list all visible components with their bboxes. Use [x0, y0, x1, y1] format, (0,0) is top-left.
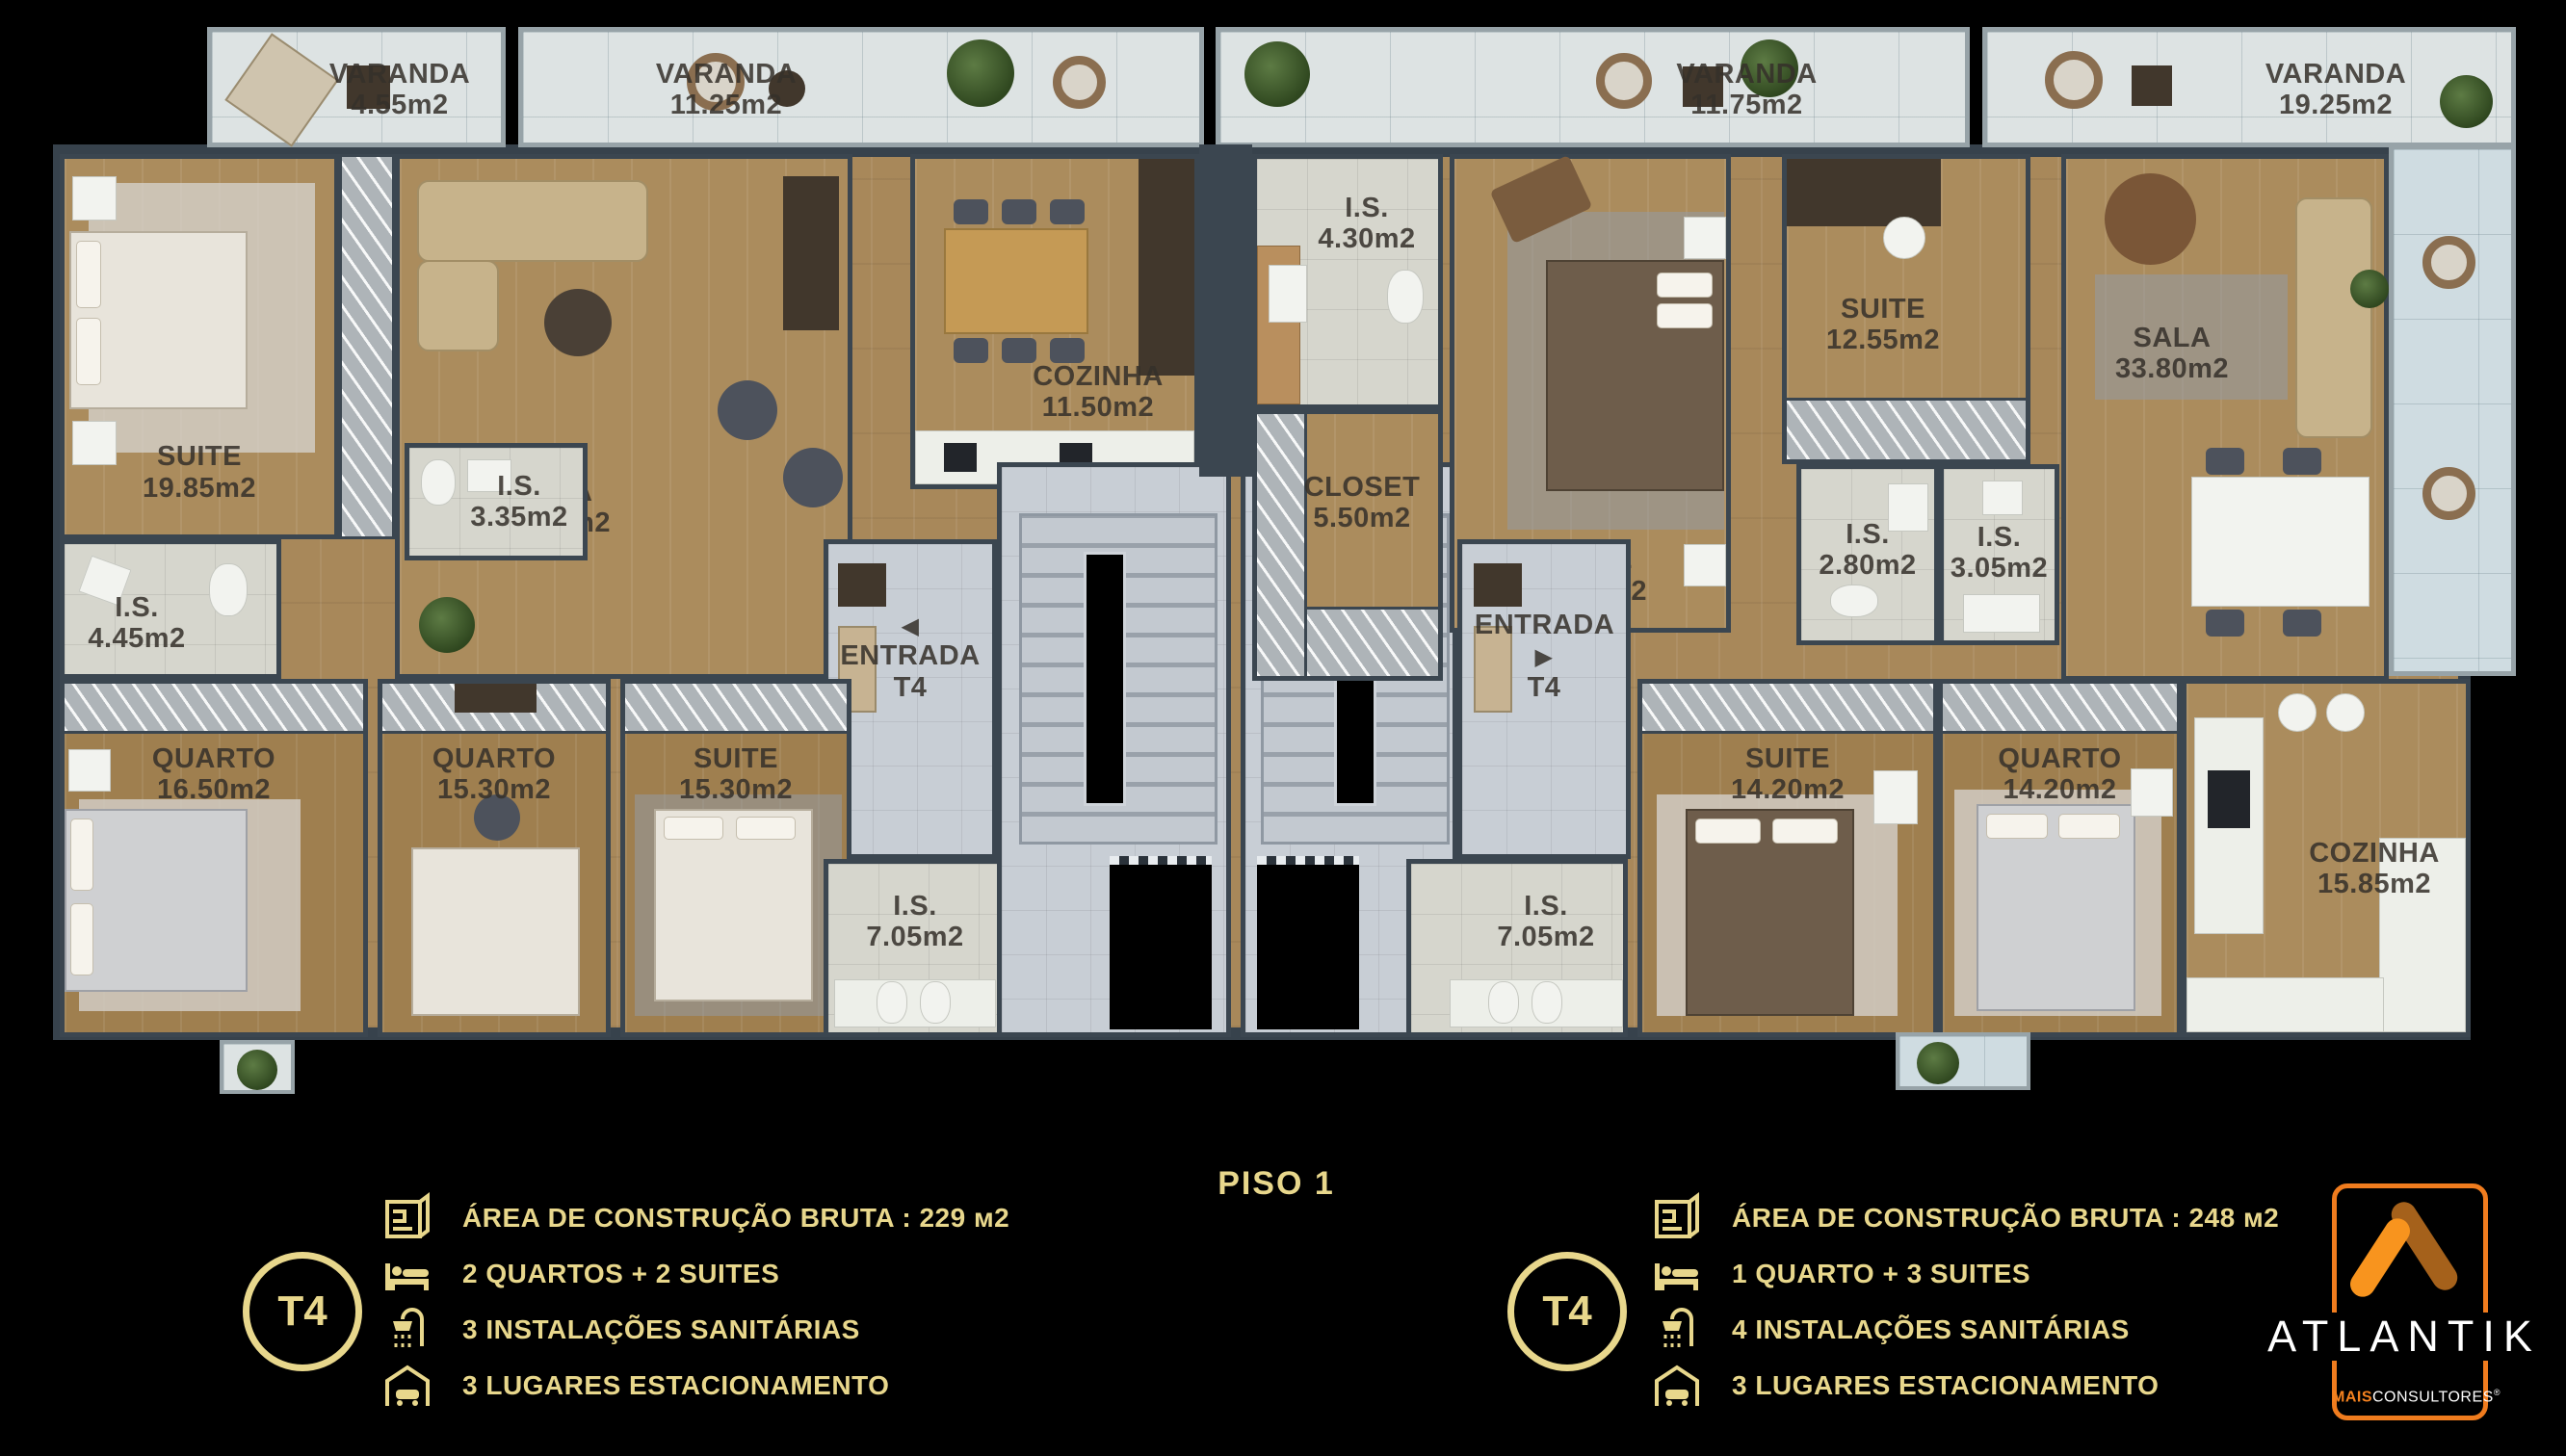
type-badge-left: T4 — [243, 1252, 362, 1371]
sofa-chaise — [417, 260, 499, 351]
legend-left-row-bedrooms: 2 QUARTOS + 2 SUITES — [380, 1246, 779, 1302]
nightstand — [72, 176, 117, 221]
kitchen-counter — [2186, 977, 2384, 1032]
pillow — [664, 817, 723, 840]
room-label: COZINHA 15.85m2 — [2278, 838, 2471, 900]
chair — [1050, 338, 1085, 363]
stool — [2278, 693, 2317, 732]
bidet — [1532, 981, 1562, 1024]
desk-chair — [1883, 217, 1925, 259]
chair — [2283, 448, 2321, 475]
legend-right-row-bathrooms: 4 INSTALAÇÕES SANITÁRIAS — [1649, 1302, 2130, 1358]
room-is-b1: I.S. 4.30m2 — [1252, 154, 1443, 409]
wardrobe-strip — [339, 154, 395, 539]
room-varanda-b1: VARANDA 11.75m2 — [1216, 27, 1970, 147]
toilet — [1488, 981, 1519, 1024]
round-rug — [2105, 173, 2196, 265]
room-suite-a2: SUITE 15.30m2 — [620, 679, 851, 1037]
bottom-planter-left — [220, 1040, 295, 1094]
pillow — [70, 903, 93, 975]
shower-icon — [380, 1302, 435, 1358]
pillow — [1772, 819, 1838, 844]
shaft-edge — [1257, 856, 1359, 865]
room-label: COZINHA 11.50m2 — [1002, 361, 1194, 424]
plant — [1917, 1042, 1959, 1084]
pillow — [736, 817, 796, 840]
room-label: QUARTO 15.30m2 — [382, 743, 606, 806]
pillow — [76, 318, 101, 385]
sofa — [417, 180, 648, 262]
room-varanda-a-small: VARANDA 4.55m2 — [207, 27, 506, 147]
toilet — [877, 981, 907, 1024]
room-suite-a: SUITE 19.85m2 — [60, 154, 339, 539]
stool — [2326, 693, 2365, 732]
legend-left-row-bathrooms: 3 INSTALAÇÕES SANITÁRIAS — [380, 1302, 860, 1358]
chair — [2206, 610, 2244, 637]
coffee-table — [544, 289, 612, 356]
room-label: I.S. 3.35m2 — [461, 471, 577, 533]
room-cozinha-a: COZINHA 11.50m2 — [910, 154, 1199, 489]
chair — [954, 338, 988, 363]
center-wall — [1199, 144, 1252, 477]
room-label: I.S. 4.30m2 — [1296, 193, 1438, 255]
blueprint-icon — [380, 1190, 435, 1246]
room-label: SALA 33.80m2 — [2076, 323, 2268, 385]
pillow — [76, 241, 101, 308]
wardrobe-strip — [625, 684, 847, 734]
toilet — [1830, 585, 1878, 617]
room-is-a2: I.S. 3.35m2 — [405, 443, 588, 560]
logo-a-left-bar — [2345, 1213, 2415, 1301]
bidet — [920, 981, 951, 1024]
nightstand — [1684, 217, 1726, 259]
room-is-b2: I.S. 2.80m2 — [1796, 464, 1939, 645]
shower — [1963, 594, 2040, 633]
bed-icon — [380, 1246, 435, 1302]
dining-table — [2191, 477, 2370, 607]
room-label: SUITE 15.30m2 — [625, 743, 847, 806]
wardrobe-strip — [1943, 684, 2177, 734]
pillow — [1695, 819, 1761, 844]
armchair — [783, 448, 843, 507]
kitchen-cabinet — [1139, 159, 1194, 376]
room-sala-a: SALA 36.95m2 — [395, 154, 852, 679]
room-varanda-b2-side — [2389, 144, 2516, 676]
wardrobe-strip — [1307, 607, 1438, 676]
room-suite-b3: SUITE 14.20m2 — [1637, 679, 1938, 1037]
room-is-b4: I.S. 7.05m2 — [1406, 859, 1628, 1037]
room-label: I.S. 7.05m2 — [1469, 891, 1623, 953]
room-label: VARANDA 19.25m2 — [2160, 59, 2511, 121]
room-entrada-b: ENTRADA ▶ T4 — [1457, 539, 1631, 859]
entrance-arrow-icon: ◀ — [902, 613, 920, 639]
armchair — [2422, 467, 2475, 520]
garage-icon — [380, 1358, 435, 1414]
pillow — [70, 819, 93, 891]
room-is-a1: I.S. 4.45m2 — [60, 539, 281, 679]
entrance-arrow-icon: ▶ — [1535, 644, 1554, 670]
pillow — [1657, 303, 1713, 328]
hob — [2208, 770, 2250, 828]
wall-art — [1474, 563, 1522, 607]
room-quarto-a1: QUARTO 16.50m2 — [60, 679, 368, 1037]
brand-name: ATLANTIK — [2260, 1313, 2549, 1361]
room-label: SUITE 12.55m2 — [1787, 294, 1979, 356]
garage-icon — [1649, 1358, 1705, 1414]
room-label: VARANDA 11.75m2 — [1529, 59, 1965, 121]
room-label: I.S. 4.45m2 — [65, 592, 209, 655]
legend-right-row-parking: 3 LUGARES ESTACIONAMENTO — [1649, 1358, 2159, 1414]
dining-table — [944, 228, 1088, 334]
hanging-chair — [2045, 51, 2103, 109]
page-title: PISO 1 — [1194, 1165, 1358, 1203]
sink — [1269, 265, 1307, 323]
room-sala-b: SALA 33.80m2 — [2061, 154, 2389, 681]
tv-sideboard — [783, 176, 839, 330]
room-label: VARANDA 4.55m2 — [299, 59, 501, 121]
bottom-planter-right — [1896, 1032, 2030, 1090]
armchair — [1053, 56, 1106, 109]
toilet — [1387, 270, 1424, 324]
room-quarto-b: QUARTO 14.20m2 — [1938, 679, 2182, 1037]
stair-core-left — [997, 462, 1231, 1037]
room-label: ENTRADA ▶ T4 — [1462, 610, 1626, 703]
chair — [2206, 448, 2244, 475]
pillow — [2058, 814, 2120, 839]
type-badge-right: T4 — [1507, 1252, 1627, 1371]
blueprint-icon — [1649, 1190, 1705, 1246]
toilet — [209, 563, 248, 616]
legend-right-row-bedrooms: 1 QUARTO + 3 SUITES — [1649, 1246, 2030, 1302]
plant — [2350, 270, 2389, 308]
tv-panel — [455, 684, 537, 713]
room-label: CLOSET 5.50m2 — [1286, 472, 1438, 534]
chair — [1002, 338, 1036, 363]
desk — [1787, 159, 1941, 226]
floor-plan-poster: VARANDA 4.55m2 VARANDA 11.25m2 VARANDA 1… — [0, 0, 2566, 1456]
room-cozinha-b: COZINHA 15.85m2 — [2182, 679, 2471, 1037]
plant — [947, 39, 1014, 107]
room-label: I.S. 2.80m2 — [1801, 519, 1934, 582]
wardrobe-strip — [1257, 414, 1307, 676]
legend-left-row-parking: 3 LUGARES ESTACIONAMENTO — [380, 1358, 889, 1414]
sink — [1982, 481, 2023, 515]
chair — [2283, 610, 2321, 637]
room-label: I.S. 7.05m2 — [828, 891, 1002, 953]
plant — [419, 597, 475, 653]
room-label: VARANDA 11.25m2 — [523, 59, 930, 121]
bed-icon — [1649, 1246, 1705, 1302]
chair — [1050, 199, 1085, 224]
armchair — [2422, 236, 2475, 289]
room-label: I.S. 3.05m2 — [1944, 522, 2055, 585]
room-closet-b: CLOSET 5.50m2 — [1252, 409, 1443, 681]
armchair — [718, 380, 777, 440]
room-label: QUARTO 14.20m2 — [1943, 743, 2177, 806]
chair — [954, 199, 988, 224]
wall-art — [838, 563, 886, 607]
room-suite-b2: SUITE 12.55m2 — [1782, 154, 2030, 464]
wardrobe-strip — [1642, 684, 1933, 734]
brand-subtitle: MAISCONSULTORES® — [2332, 1388, 2478, 1406]
brand-logo-frame — [2332, 1183, 2488, 1420]
sink — [944, 443, 977, 472]
shower-icon — [1649, 1302, 1705, 1358]
room-label: ◀ ENTRADA T4 — [828, 610, 992, 703]
room-varanda-b2-top: VARANDA 19.25m2 — [1982, 27, 2516, 147]
room-is-b3: I.S. 3.05m2 — [1939, 464, 2059, 645]
chair — [1002, 199, 1036, 224]
room-varanda-a-large: VARANDA 11.25m2 — [518, 27, 1204, 147]
plant — [237, 1050, 277, 1090]
bed — [411, 847, 580, 1016]
wardrobe-strip — [65, 684, 363, 734]
shaft-edge — [1110, 856, 1212, 865]
room-is-a3: I.S. 7.05m2 — [824, 859, 1007, 1037]
pillow — [1986, 814, 2048, 839]
legend-left-row-area: ÁREA DE CONSTRUÇÃO BRUTA : 229 м2 — [380, 1190, 1009, 1246]
wardrobe-strip — [1787, 398, 2026, 459]
vanity-counter — [834, 979, 996, 1027]
pillow — [1657, 273, 1713, 298]
room-label: SUITE 19.85m2 — [65, 441, 334, 504]
stair-void — [1084, 552, 1126, 806]
sofa — [2295, 197, 2372, 438]
room-quarto-a2: QUARTO 15.30m2 — [378, 679, 611, 1037]
toilet — [421, 459, 456, 506]
room-label: SUITE 14.20m2 — [1642, 743, 1933, 806]
legend-right-row-area: ÁREA DE CONSTRUÇÃO BRUTA : 248 м2 — [1649, 1190, 2279, 1246]
room-label: QUARTO 16.50m2 — [65, 743, 363, 806]
elevator-shaft — [1257, 864, 1359, 1029]
elevator-shaft — [1110, 864, 1212, 1029]
plant — [1244, 41, 1310, 107]
